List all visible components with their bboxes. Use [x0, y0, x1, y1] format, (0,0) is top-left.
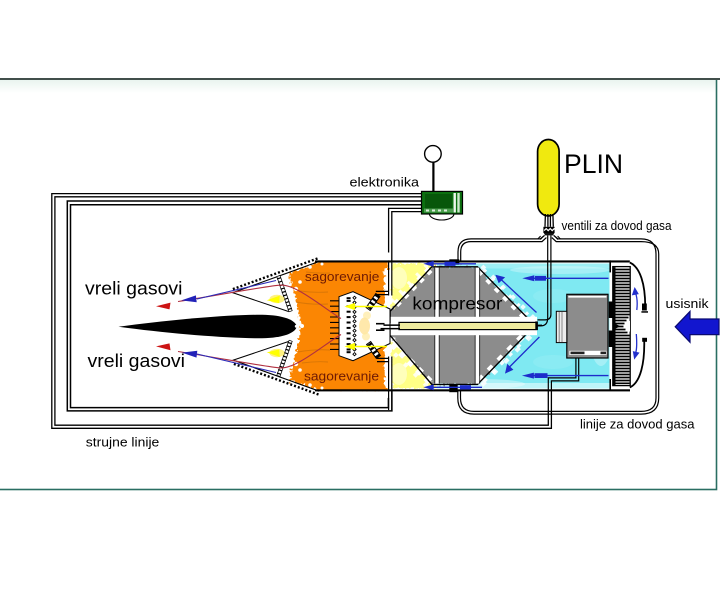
svg-text:ventili za dovod gasa: ventili za dovod gasa	[562, 218, 673, 233]
svg-text:vreli gasovi: vreli gasovi	[85, 278, 183, 299]
svg-text:elektronika: elektronika	[350, 175, 420, 190]
svg-text:kompresor: kompresor	[412, 294, 502, 314]
svg-text:sagorevanje: sagorevanje	[305, 269, 380, 284]
svg-text:linije za dovod gasa: linije za dovod gasa	[580, 417, 695, 432]
svg-text:sagorevanje: sagorevanje	[304, 368, 379, 383]
svg-text:strujne linije: strujne linije	[86, 435, 160, 450]
svg-text:PLIN: PLIN	[564, 149, 623, 179]
svg-text:usisnik: usisnik	[666, 296, 710, 311]
svg-text:vreli gasovi: vreli gasovi	[88, 350, 186, 371]
